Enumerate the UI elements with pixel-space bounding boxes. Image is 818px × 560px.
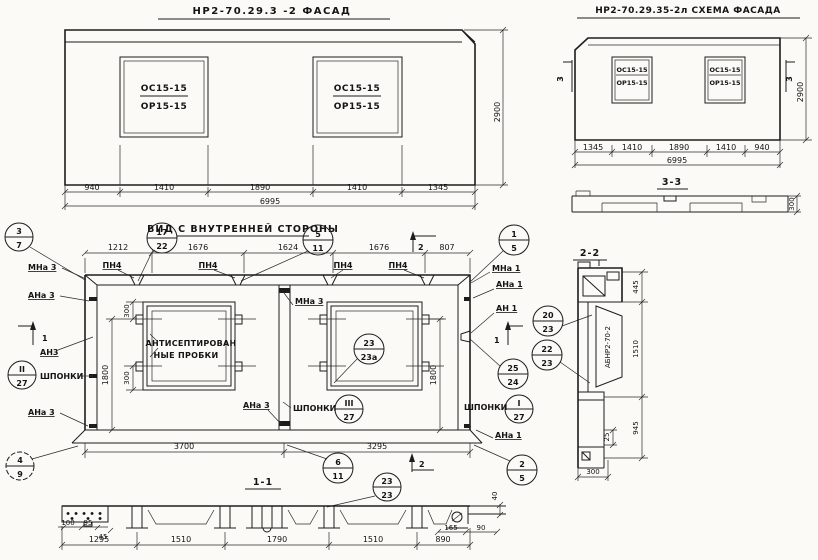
svg-text:I: I [518, 399, 521, 408]
svg-text:300: 300 [123, 304, 131, 317]
section-mark-2-top: 2 [410, 231, 436, 252]
blueprint-drawing: НР2-70.29.3 -2 ФАСАД ОС15-15 ОР15-15 ОС1… [0, 0, 818, 560]
svg-text:7: 7 [16, 241, 22, 250]
svg-text:22: 22 [541, 345, 552, 354]
svg-text:27: 27 [16, 379, 27, 388]
dim: 1410 [154, 183, 174, 192]
leader [473, 289, 494, 298]
svg-text:945: 945 [632, 421, 640, 434]
svg-text:2: 2 [519, 460, 525, 469]
svg-text:1800: 1800 [101, 365, 110, 385]
svg-text:1: 1 [511, 230, 517, 239]
svg-text:23: 23 [542, 325, 553, 334]
svg-text:20: 20 [542, 311, 554, 320]
svg-text:ПН4: ПН4 [389, 261, 408, 270]
label-ana3-left-top: АНа 3 [28, 291, 55, 300]
scheme-panel-outline [575, 38, 780, 140]
window-mark-top: ОС15-15 [334, 84, 381, 94]
window-mark-top: ОС15-15 [141, 84, 188, 94]
svg-text:300: 300 [586, 468, 599, 476]
label-mna1-right: МНа 1 [492, 264, 521, 273]
svg-text:ПН4: ПН4 [199, 261, 218, 270]
label-an3-left: АН3 [40, 348, 58, 357]
svg-text:3: 3 [785, 76, 794, 82]
svg-text:40: 40 [491, 492, 499, 501]
dim: 1510 [171, 535, 191, 544]
callout-1-5: 1 5 [470, 225, 529, 282]
plug-note-line1: АНТИСЕПТИРОВАН [145, 339, 236, 348]
dim: 1510 [363, 535, 383, 544]
svg-text:24: 24 [507, 378, 519, 387]
dim: 1410 [347, 183, 367, 192]
section-mark-2-bottom: 2 [409, 453, 434, 472]
svg-text:25: 25 [603, 433, 611, 442]
inner-panel-outline [72, 275, 482, 443]
svg-text:9: 9 [17, 470, 23, 479]
svg-text:2: 2 [419, 460, 425, 469]
svg-text:4: 4 [17, 456, 23, 465]
recess-panels [148, 510, 452, 524]
dim: 1295 [89, 535, 109, 544]
section-2-2-width-dim: 300 [575, 460, 611, 481]
callout-25-24: 25 24 [470, 339, 528, 389]
right-1800-dim: 1800 [429, 316, 446, 433]
section-1-1: 1-1 100 95 45 165 90 40 [58, 477, 506, 550]
svg-text:27: 27 [343, 413, 354, 422]
label-ana3-mid: АНа 3 [243, 401, 270, 410]
leader [284, 293, 293, 305]
left-1800-dim: 1800 [101, 316, 124, 433]
callout-23-23a: 23 23а [334, 334, 384, 383]
section-mark-1-right: 1 [494, 321, 523, 345]
label-ana1-right-top: АНа 1 [496, 280, 523, 289]
facade-window-1: ОС15-15 ОР15-15 [120, 57, 208, 137]
svg-text:5: 5 [511, 244, 517, 253]
dim: 1676 [188, 243, 208, 252]
facade-top-band [65, 30, 475, 42]
svg-text:ПН4: ПН4 [103, 261, 122, 270]
scheme-title: НР2-70.29.35-2л СХЕМА ФАСАДА [595, 6, 780, 16]
svg-text:1: 1 [494, 336, 500, 345]
facade-panel-outline [65, 30, 475, 185]
dim: 1624 [278, 243, 298, 252]
svg-text:17: 17 [156, 228, 167, 237]
dim: 1212 [108, 243, 128, 252]
dim: 1410 [716, 143, 736, 152]
label-shponki-left: ШПОНКИ [40, 372, 83, 381]
svg-text:II: II [19, 365, 25, 374]
scheme-view: НР2-70.29.35-2л СХЕМА ФАСАДА ОС15-15 ОР1… [556, 6, 812, 168]
inner-bottom-dim-chain: 3700 3295 [82, 442, 473, 458]
label-shponki-mid: ШПОНКИ [293, 404, 336, 413]
label-shponki-right: ШПОНКИ [464, 403, 507, 412]
leader [62, 268, 86, 279]
dim: 807 [439, 243, 454, 252]
section-2-2-step-dim: 25 [603, 427, 617, 448]
svg-text:6: 6 [335, 458, 341, 467]
svg-text:5: 5 [519, 474, 525, 483]
dim: 890 [435, 535, 450, 544]
svg-text:90: 90 [477, 524, 486, 532]
dim-height: 2900 [796, 82, 805, 102]
plug-note-line2: НЫЕ ПРОБКИ [154, 351, 219, 360]
dim: 1345 [583, 143, 603, 152]
window1-offset-dims: 300 300 [123, 299, 143, 393]
dim: 1410 [622, 143, 642, 152]
svg-text:2: 2 [418, 243, 424, 252]
dim: 940 [754, 143, 769, 152]
callout-6-11: 6 11 [287, 445, 353, 483]
callout-III-27: III 27 [335, 395, 363, 423]
ribs [126, 506, 428, 528]
leader [471, 272, 490, 283]
label-mna3-mid: МНа 3 [295, 297, 323, 306]
svg-text:ПН4: ПН4 [334, 261, 353, 270]
svg-text:3: 3 [16, 227, 22, 236]
svg-text:165: 165 [444, 524, 457, 532]
svg-text:100: 100 [61, 519, 74, 527]
facade-window-2: ОС15-15 ОР15-15 [313, 57, 402, 137]
inner-window-2 [308, 302, 444, 390]
callout-20-23: 20 23 [533, 306, 592, 336]
svg-text:95: 95 [84, 519, 93, 527]
svg-text:445: 445 [632, 280, 640, 293]
svg-text:23: 23 [381, 477, 392, 486]
section-1-1-title: 1-1 [253, 477, 273, 488]
svg-text:23: 23 [381, 491, 392, 500]
scheme-window-1: ОС15-15 ОР15-15 [612, 57, 652, 103]
label-ana3-left-bottom: АНа 3 [28, 408, 55, 417]
dim: 3700 [174, 442, 194, 451]
svg-text:11: 11 [312, 244, 324, 253]
svg-text:3: 3 [556, 76, 565, 82]
section-mark-3-right: 3 [785, 60, 795, 92]
svg-text:22: 22 [156, 242, 167, 251]
svg-text:27: 27 [513, 413, 524, 422]
leader [476, 430, 493, 438]
svg-text:5: 5 [315, 230, 321, 239]
dovetail-notches [130, 275, 434, 285]
scheme-height-dim: 2900 [780, 35, 812, 143]
mid-notch [263, 528, 271, 532]
inner-view: ВИД С ВНУТРЕННЕЙ СТОРОНЫ 3 7 17 22 5 11 … [5, 223, 537, 507]
section-1-1-profile [62, 506, 506, 532]
svg-text:300: 300 [123, 371, 131, 384]
facade-title: НР2-70.29.3 -2 ФАСАД [193, 6, 352, 17]
svg-text:1510: 1510 [632, 340, 640, 358]
svg-text:25: 25 [507, 364, 519, 373]
facade-dim-chain: 940 1410 1890 1410 1345 6995 [62, 183, 478, 210]
label-ana1-right-bottom: АНа 1 [495, 431, 522, 440]
dim: 3295 [367, 442, 387, 451]
section-2-2: 2-2 20 23 22 23 АБНР2-70-2 25 3 [532, 248, 648, 481]
svg-text:23а: 23а [361, 353, 378, 362]
callout-4-9: 4 9 [6, 446, 78, 480]
dim: 1345 [428, 183, 448, 192]
label-mna3-left: МНа 3 [28, 263, 56, 272]
window-projection-lines [120, 145, 402, 185]
section-1-1-small-dims: 100 95 45 165 90 40 [58, 492, 503, 541]
window-mark-bottom: ОР15-15 [709, 79, 741, 87]
dim-total: 6995 [667, 156, 687, 165]
svg-text:11: 11 [332, 472, 344, 481]
section-3-3-profile [572, 196, 788, 212]
scheme-window-2: ОС15-15 ОР15-15 [705, 57, 745, 103]
section-mark-1-left: 1 [18, 321, 48, 345]
section-mark-3-left: 3 [556, 60, 572, 92]
dim: 1890 [250, 183, 270, 192]
callout-II-27: II 27 [8, 361, 36, 389]
edge-hook [461, 331, 470, 342]
window-mark-bottom: ОР15-15 [616, 79, 648, 87]
dim: 1790 [267, 535, 287, 544]
inner-top-dim-chain: 1212 1676 1624 1676 807 [82, 243, 473, 273]
section-2-2-title: 2-2 [580, 248, 600, 259]
section-3-3-title: 3-3 [662, 177, 682, 188]
svg-text:300: 300 [788, 197, 796, 210]
svg-text:III: III [345, 399, 354, 408]
callout-2-5: 2 5 [474, 445, 537, 485]
callout-I-27: I 27 [505, 395, 533, 423]
window-mark-bottom: ОР15-15 [141, 102, 188, 112]
section-3-3-thickness-dim: 300 [788, 193, 801, 215]
dim-total: 6995 [260, 197, 280, 206]
section-2-2-profile: АБНР2-70-2 [578, 260, 622, 468]
dim: 940 [84, 183, 99, 192]
svg-text:1: 1 [42, 334, 48, 343]
dim-height: 2900 [493, 102, 502, 122]
blueprint-sheet: НР2-70.29.3 -2 ФАСАД ОС15-15 ОР15-15 ОС1… [0, 0, 818, 560]
window-mark-top: ОС15-15 [616, 66, 648, 74]
dim: 1890 [669, 143, 689, 152]
leader [60, 413, 88, 426]
svg-text:23: 23 [363, 339, 374, 348]
inner-window-1: АНТИСЕПТИРОВАН НЫЕ ПРОБКИ [124, 302, 256, 390]
section-1-1-dim-chain: 1295 1510 1790 1510 890 [59, 526, 473, 550]
callout-22-23: 22 23 [532, 340, 590, 383]
facade-view: НР2-70.29.3 -2 ФАСАД ОС15-15 ОР15-15 ОС1… [62, 6, 508, 210]
scheme-dim-chain: 1345 1410 1890 1410 940 6995 [572, 140, 783, 168]
label-an1-right: АН 1 [496, 304, 518, 313]
stamp-text: АБНР2-70-2 [604, 326, 612, 368]
section-3-3: 3-3 300 [572, 177, 801, 215]
leader [58, 337, 93, 350]
svg-text:1800: 1800 [429, 365, 438, 385]
facade-height-dim: 2900 [464, 27, 508, 188]
window-mark-top: ОС15-15 [709, 66, 741, 74]
dim: 1676 [369, 243, 389, 252]
svg-text:23: 23 [541, 359, 552, 368]
window-mark-bottom: ОР15-15 [334, 102, 381, 112]
leader [471, 313, 494, 333]
